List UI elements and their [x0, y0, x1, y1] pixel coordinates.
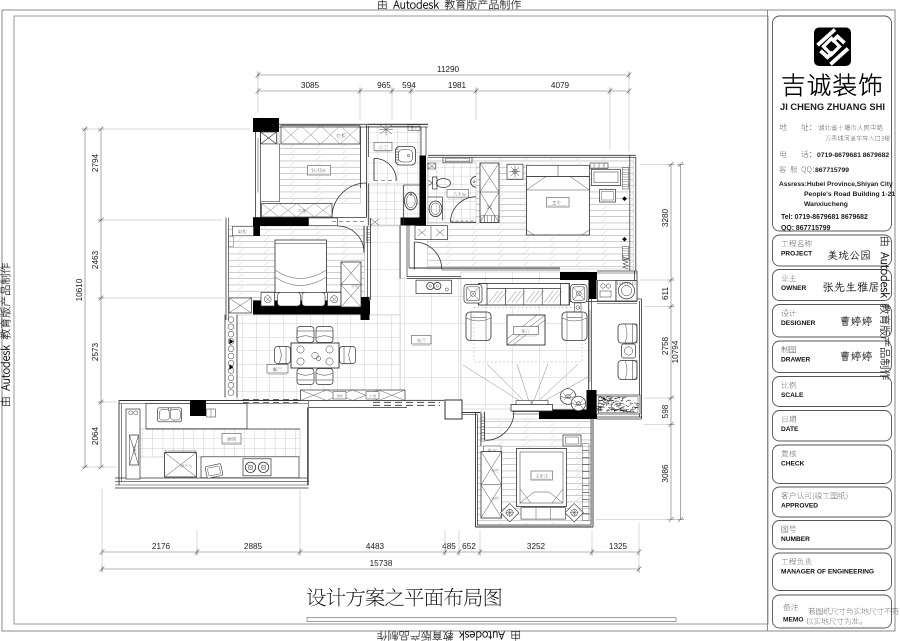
- svg-text:Assress:Hubei Province,Shiyan: Assress:Hubei Province,Shiyan City: [779, 181, 893, 188]
- svg-text:1981: 1981: [448, 81, 467, 90]
- svg-text:3280: 3280: [661, 208, 670, 227]
- svg-text:611: 611: [661, 287, 670, 300]
- svg-text:MANAGER OF ENGINEERING: MANAGER OF ENGINEERING: [781, 569, 874, 576]
- svg-text:3086: 3086: [661, 464, 670, 483]
- svg-text:2176: 2176: [152, 542, 171, 551]
- svg-text:2463: 2463: [91, 250, 100, 269]
- svg-text:598: 598: [661, 404, 670, 418]
- svg-text:PROJECT: PROJECT: [781, 251, 812, 258]
- svg-text:SCALE: SCALE: [781, 392, 804, 399]
- svg-text:2885: 2885: [244, 542, 263, 551]
- svg-text:0719-8679681 8679682: 0719-8679681 8679682: [817, 152, 889, 159]
- svg-text:3085: 3085: [301, 81, 320, 90]
- svg-text:2794: 2794: [91, 153, 100, 172]
- svg-text:15738: 15738: [370, 559, 393, 568]
- svg-text:3252: 3252: [527, 542, 546, 551]
- svg-text:2758: 2758: [661, 336, 670, 355]
- svg-text:2573: 2573: [91, 342, 100, 361]
- svg-text:10610: 10610: [75, 278, 84, 301]
- svg-text:DRAWER: DRAWER: [781, 357, 811, 364]
- svg-text:OWNER: OWNER: [781, 285, 807, 292]
- svg-text:4079: 4079: [551, 81, 570, 90]
- svg-text:Tel: 0719-8679681 8679682: Tel: 0719-8679681 8679682: [781, 214, 868, 221]
- svg-text:JI CHENG ZHUANG SHI: JI CHENG ZHUANG SHI: [780, 102, 885, 112]
- svg-text:DATE: DATE: [781, 426, 799, 433]
- svg-text:NUMBER: NUMBER: [781, 536, 810, 543]
- svg-text:11290: 11290: [437, 65, 460, 74]
- svg-text:965: 965: [377, 81, 391, 90]
- svg-text:QQ: 867715799: QQ: 867715799: [781, 225, 831, 232]
- svg-text:652: 652: [462, 542, 476, 551]
- svg-text:4483: 4483: [366, 542, 385, 551]
- svg-text:485: 485: [442, 542, 456, 551]
- svg-text:People's Road Building 1-21: People's Road Building 1-21: [804, 191, 895, 198]
- svg-text:10794: 10794: [671, 340, 680, 363]
- svg-text:2064: 2064: [91, 426, 100, 445]
- svg-text:594: 594: [402, 81, 416, 90]
- svg-text:DESIGNER: DESIGNER: [781, 320, 816, 327]
- svg-text:CHECK: CHECK: [781, 461, 805, 468]
- svg-text:APPROVED: APPROVED: [781, 503, 818, 510]
- svg-text:867715799: 867715799: [815, 167, 849, 174]
- svg-text:MEMO: MEMO: [783, 617, 804, 624]
- svg-text:1325: 1325: [609, 542, 628, 551]
- svg-text:Wanxiucheng: Wanxiucheng: [804, 201, 848, 208]
